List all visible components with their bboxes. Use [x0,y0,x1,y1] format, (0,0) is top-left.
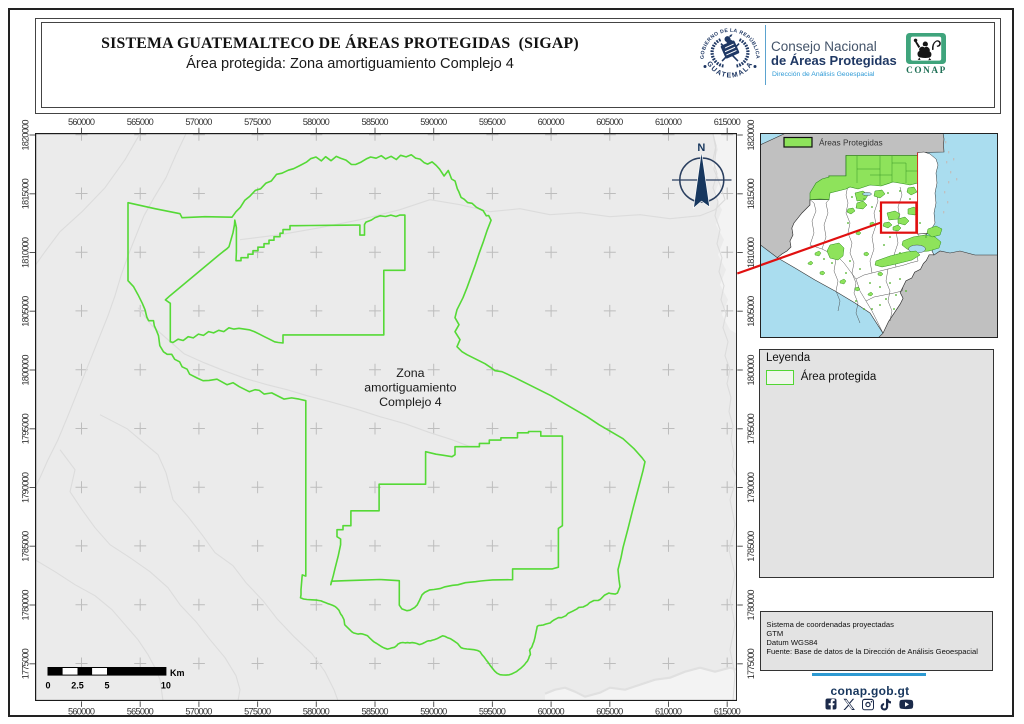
svg-text:1800000: 1800000 [746,355,756,386]
svg-text:590000: 590000 [420,706,447,716]
svg-text:615000: 615000 [714,117,741,127]
svg-text:1810000: 1810000 [20,237,30,268]
svg-text:1790000: 1790000 [20,472,30,503]
svg-text:560000: 560000 [68,117,95,127]
svg-text:615000: 615000 [714,706,741,716]
svg-text:1790000: 1790000 [746,472,756,503]
svg-text:585000: 585000 [362,706,389,716]
svg-text:1785000: 1785000 [20,531,30,562]
svg-text:1805000: 1805000 [746,296,756,327]
svg-text:570000: 570000 [185,117,212,127]
svg-text:610000: 610000 [655,117,682,127]
svg-text:1805000: 1805000 [20,296,30,327]
svg-text:1775000: 1775000 [746,648,756,679]
svg-text:565000: 565000 [127,706,154,716]
svg-text:575000: 575000 [244,706,271,716]
svg-text:1780000: 1780000 [746,590,756,621]
svg-text:600000: 600000 [538,117,565,127]
svg-text:560000: 560000 [68,706,95,716]
svg-text:585000: 585000 [362,117,389,127]
svg-text:1795000: 1795000 [746,413,756,444]
svg-text:605000: 605000 [596,706,623,716]
svg-text:1775000: 1775000 [20,648,30,679]
svg-text:1795000: 1795000 [20,413,30,444]
svg-text:1815000: 1815000 [746,178,756,209]
svg-text:595000: 595000 [479,706,506,716]
svg-text:1810000: 1810000 [746,237,756,268]
svg-text:580000: 580000 [303,117,330,127]
svg-text:580000: 580000 [303,706,330,716]
svg-text:1800000: 1800000 [20,355,30,386]
svg-text:595000: 595000 [479,117,506,127]
svg-text:1820000: 1820000 [20,120,30,151]
svg-text:1815000: 1815000 [20,178,30,209]
svg-text:575000: 575000 [244,117,271,127]
svg-text:600000: 600000 [538,706,565,716]
svg-text:1820000: 1820000 [746,120,756,151]
svg-text:570000: 570000 [185,706,212,716]
svg-text:1785000: 1785000 [746,531,756,562]
svg-text:610000: 610000 [655,706,682,716]
svg-text:1780000: 1780000 [20,590,30,621]
svg-text:605000: 605000 [596,117,623,127]
svg-text:590000: 590000 [420,117,447,127]
svg-text:565000: 565000 [127,117,154,127]
